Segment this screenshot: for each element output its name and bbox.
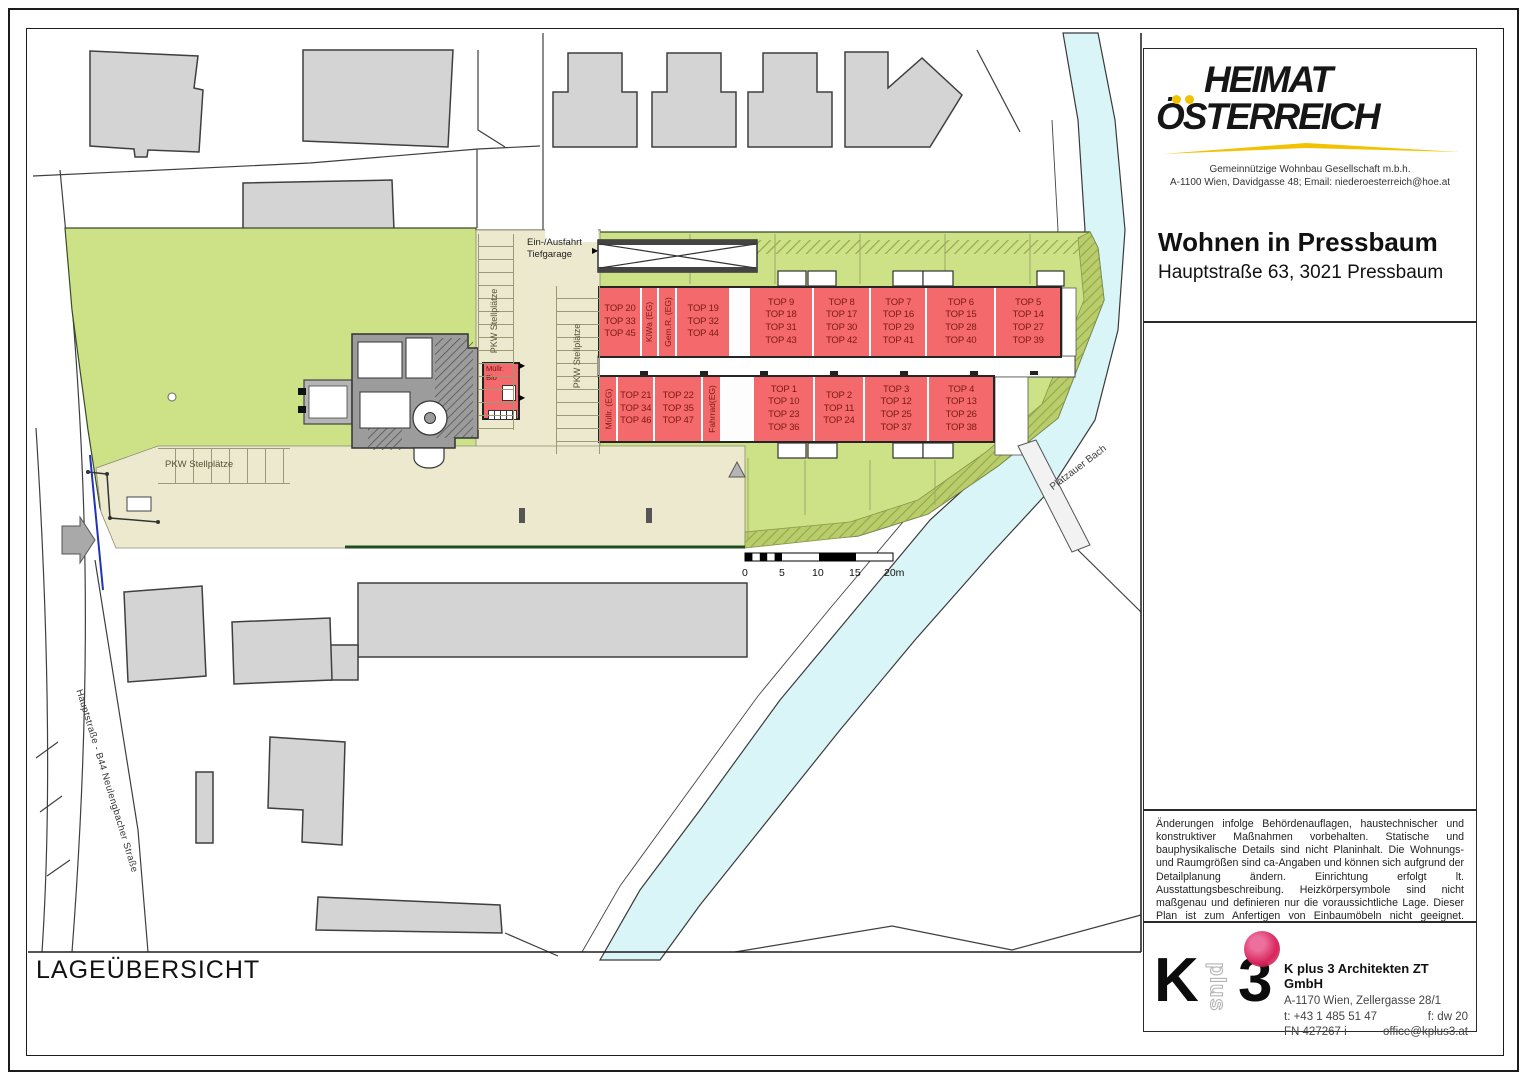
scale-tick: 20m: [884, 567, 905, 579]
unit-cell-top21[interactable]: TOP 21 TOP 34 TOP 46: [616, 377, 653, 441]
project-title: Wohnen in Pressbaum: [1158, 227, 1476, 258]
upper-residential-building: TOP 20 TOP 33 TOP 45 KiWa (EG) Gem.R. (E…: [598, 286, 1062, 358]
unit-label: TOP 22 TOP 35 TOP 47: [662, 390, 693, 428]
title-block-spacer-panel: [1143, 322, 1477, 810]
unit-label: TOP 6 TOP 15 TOP 28 TOP 40: [945, 297, 976, 347]
logo-line2: ÖSTERREICH: [1156, 98, 1476, 137]
org-address: Gemeinnützige Wohnbau Gesellschaft m.b.h…: [1144, 163, 1476, 189]
unit-cell-top4[interactable]: TOP 4 TOP 13 TOP 26 TOP 38: [927, 377, 993, 441]
unit-label: TOP 20 TOP 33 TOP 45: [604, 303, 635, 341]
unit-cell-top20[interactable]: TOP 20 TOP 33 TOP 45: [600, 288, 640, 356]
architect-address: A-1170 Wien, Zellergasse 28/1: [1284, 994, 1441, 1010]
scale-bar: 0 5 10 15 20m: [742, 553, 905, 579]
unit-label: TOP 19 TOP 32 TOP 44: [688, 303, 719, 341]
architect-panel: K plus 3 K plus 3 Architekten ZT GmbH A-…: [1143, 922, 1477, 1032]
architect-phone: t: +43 1 485 51 47: [1284, 1010, 1377, 1026]
garage-arrow-icon: ▶: [592, 247, 598, 255]
passage-gap: [720, 377, 752, 441]
neighbor-building: [358, 583, 747, 657]
architect-name: K plus 3 Architekten ZT GmbH: [1284, 961, 1468, 991]
neighbor-building: [124, 586, 206, 682]
plan-sheet: 0 5 10 15 20m TOP 20 TOP 33 TOP 45 KiWa …: [0, 0, 1527, 1080]
kplus3-logo-k: K: [1154, 955, 1197, 1008]
unit-cell-top3[interactable]: TOP 3 TOP 12 TOP 25 TOP 37: [863, 377, 928, 441]
neighbor-building: [316, 897, 502, 933]
org-line1: Gemeinnützige Wohnbau Gesellschaft m.b.h…: [1144, 163, 1476, 176]
scale-tick: 0: [742, 567, 748, 579]
unit-cell-top5[interactable]: TOP 5 TOP 14 TOP 27 TOP 39: [994, 288, 1060, 356]
neighbor-building: [90, 51, 203, 157]
neighbor-building: [303, 50, 453, 147]
unit-cell-top6[interactable]: TOP 6 TOP 15 TOP 28 TOP 40: [925, 288, 994, 356]
architect-fax: f: dw 20: [1428, 1010, 1468, 1026]
org-line2: A-1100 Wien, Davidgasse 48; Email: niede…: [1144, 176, 1476, 189]
scale-tick: 5: [779, 567, 785, 579]
architect-email[interactable]: office@kplus3.at: [1383, 1025, 1468, 1041]
unit-label: TOP 5 TOP 14 TOP 27 TOP 39: [1012, 297, 1043, 347]
room-label: KiWa (EG): [645, 302, 655, 342]
neighbor-building: [652, 53, 736, 147]
garage-entry-label: Ein-/Ausfahrt Tiefgarage: [527, 237, 582, 261]
lower-residential-building: Müllr. (EG) TOP 21 TOP 34 TOP 46 TOP 22 …: [598, 375, 995, 443]
neighbor-building: [845, 52, 962, 147]
room-label: Fahrrad(EG): [706, 385, 716, 433]
neighbor-building: [553, 53, 637, 147]
disclaimer-panel: Änderungen infolge Behördenauflagen, hau…: [1143, 810, 1477, 922]
unit-cell-top1[interactable]: TOP 1 TOP 10 TOP 23 TOP 36: [752, 377, 813, 441]
scale-tick: 10: [812, 567, 824, 579]
unit-cell-top8[interactable]: TOP 8 TOP 17 TOP 30 TOP 42: [812, 288, 869, 356]
parking-label-mid: PKW Stellplätze: [572, 311, 582, 401]
unit-cell-top9[interactable]: TOP 9 TOP 18 TOP 31 TOP 43: [748, 288, 812, 356]
architect-register: FN 427267 i: [1284, 1025, 1347, 1041]
room-cell-fahrrad: Fahrrad(EG): [701, 377, 720, 441]
architect-stamp-icon: [1244, 931, 1280, 967]
parking-label-left: PKW Stellplätze: [489, 276, 499, 366]
door-arrow-icon: ▶: [519, 362, 525, 370]
room-cell-kiwa: KiWa (EG): [640, 288, 657, 356]
stairwell-gap: [729, 288, 748, 356]
logo-swoosh-icon: [1156, 141, 1466, 157]
neighbor-building: [268, 737, 345, 845]
unit-label: TOP 7 TOP 16 TOP 29 TOP 41: [883, 297, 914, 347]
door-arrow-icon: ▶: [519, 394, 525, 402]
unit-label: TOP 1 TOP 10 TOP 23 TOP 36: [768, 384, 799, 434]
scale-tick: 15: [849, 567, 861, 579]
neighbor-building: [232, 618, 332, 684]
neighbor-building: [330, 645, 358, 680]
unit-cell-top19[interactable]: TOP 19 TOP 32 TOP 44: [675, 288, 728, 356]
unit-cell-top7[interactable]: TOP 7 TOP 16 TOP 29 TOP 41: [869, 288, 925, 356]
garage-ramp: [598, 240, 757, 272]
unit-label: TOP 8 TOP 17 TOP 30 TOP 42: [826, 297, 857, 347]
neighbor-building: [196, 772, 213, 843]
parking-label-bottom: PKW Stellplätze: [165, 459, 233, 470]
unit-cell-top22[interactable]: TOP 22 TOP 35 TOP 47: [653, 377, 701, 441]
entrance-arrow-icon: [62, 517, 95, 563]
logo-dots-icon: [1172, 95, 1194, 104]
room-label: Gem.R. (EG): [662, 297, 672, 347]
logo-line1: HEIMAT: [1204, 61, 1476, 98]
sheet-title: LAGEÜBERSICHT: [36, 956, 260, 985]
unit-label: TOP 21 TOP 34 TOP 46: [620, 390, 651, 428]
unit-label: TOP 2 TOP 11 TOP 24: [823, 390, 854, 428]
neighbor-building: [748, 53, 832, 147]
unit-label: TOP 9 TOP 18 TOP 31 TOP 43: [765, 297, 796, 347]
unit-label: TOP 3 TOP 12 TOP 25 TOP 37: [880, 384, 911, 434]
heimat-oesterreich-logo: HEIMAT ÖSTERREICH: [1144, 49, 1476, 157]
room-label: Müllr. (EG): [603, 389, 613, 430]
unit-label: TOP 4 TOP 13 TOP 26 TOP 38: [946, 384, 977, 434]
room-cell-muellraum: Müllr. (EG): [600, 377, 616, 441]
title-block-logo-panel: HEIMAT ÖSTERREICH Gemeinnützige Wohnbau …: [1143, 48, 1477, 322]
neighbor-building: [243, 180, 394, 233]
room-cell-gemr: Gem.R. (EG): [657, 288, 675, 356]
unit-cell-top2[interactable]: TOP 2 TOP 11 TOP 24: [813, 377, 862, 441]
kplus3-logo-plus: plus: [1204, 962, 1230, 1011]
project-address: Hauptstraße 63, 3021 Pressbaum: [1158, 262, 1476, 284]
